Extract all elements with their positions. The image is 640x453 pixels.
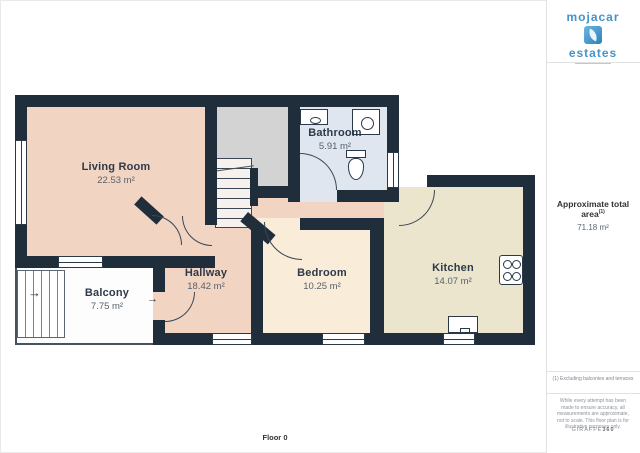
bedroom-label: Bedroom 10.25 m² <box>272 267 372 292</box>
kitchen-label: Kitchen 14.07 m² <box>403 262 503 287</box>
window-bathroom-right <box>387 152 399 188</box>
wall-stairwell-stub <box>250 168 258 206</box>
disclaimer-text: While every attempt has been made to ens… <box>553 398 633 431</box>
total-area-value: 71.18 m² <box>546 223 640 232</box>
kitchen-unit <box>448 316 478 333</box>
wall-kitchen-top <box>427 175 535 187</box>
info-sidebar: mojacar estates Approximate total area(1… <box>546 0 640 453</box>
wall-bedroom-kitchen <box>370 218 384 345</box>
room-area: 10.25 m² <box>272 281 372 292</box>
balcony-edge-left <box>15 268 17 345</box>
room-area: 14.07 m² <box>403 276 503 287</box>
total-area-summary: Approximate total area(1) 71.18 m² <box>546 199 640 232</box>
bathroom-label: Bathroom 5.91 m² <box>285 127 385 152</box>
living-room-label: Living Room 22.53 m² <box>56 161 176 186</box>
window-hallway-bottom <box>212 333 252 345</box>
watermark-main: GIRAFFE <box>571 427 602 433</box>
stairs-direction-arrow-icon: → <box>28 286 41 299</box>
logo-text-bottom: estates <box>546 46 640 60</box>
watermark-suffix: 360 <box>602 427 614 433</box>
floorplan-page: → → <box>0 0 640 453</box>
wall-bathroom-bottom <box>337 190 399 202</box>
balcony-label: Balcony 7.75 m² <box>57 287 157 312</box>
room-area: 7.75 m² <box>57 301 157 312</box>
agency-logo: mojacar estates <box>546 10 640 64</box>
room-name: Living Room <box>56 161 176 173</box>
logo-text-top: mojacar <box>546 10 640 24</box>
logo-tagline-line <box>575 63 611 64</box>
room-name: Bathroom <box>285 127 385 139</box>
window-bedroom-bottom <box>322 333 365 345</box>
footnote-marker: (1) <box>599 209 605 215</box>
floor-label: Floor 0 <box>225 433 325 442</box>
sidebar-divider-1 <box>546 62 640 63</box>
area-footnote: (1) Excluding balconies and terraces <box>548 376 638 382</box>
room-area: 5.91 m² <box>285 141 385 152</box>
total-area-title: Approximate total area(1) <box>546 199 640 219</box>
room-name: Kitchen <box>403 262 503 274</box>
wall-livingroom-right <box>205 95 217 225</box>
room-area: 18.42 m² <box>156 281 256 292</box>
room-area: 22.53 m² <box>56 175 176 186</box>
room-name: Balcony <box>57 287 157 299</box>
window-livingroom-left <box>15 140 27 225</box>
room-name: Hallway <box>156 267 256 279</box>
agency-logo-icon <box>584 26 602 44</box>
window-kitchen-bottom <box>443 333 475 345</box>
sidebar-divider-3 <box>546 393 640 394</box>
watermark: GIRAFFE360 <box>546 427 640 433</box>
wall-balcony-right-lower <box>153 320 165 345</box>
sidebar-divider-2 <box>546 371 640 372</box>
room-name: Bedroom <box>272 267 372 279</box>
balcony-edge-bottom <box>15 343 153 345</box>
bathroom-sink <box>300 109 328 125</box>
window-livingroom-balcony <box>58 256 103 268</box>
wall-kitchen-right <box>523 175 535 345</box>
hallway-label: Hallway 18.42 m² <box>156 267 256 292</box>
